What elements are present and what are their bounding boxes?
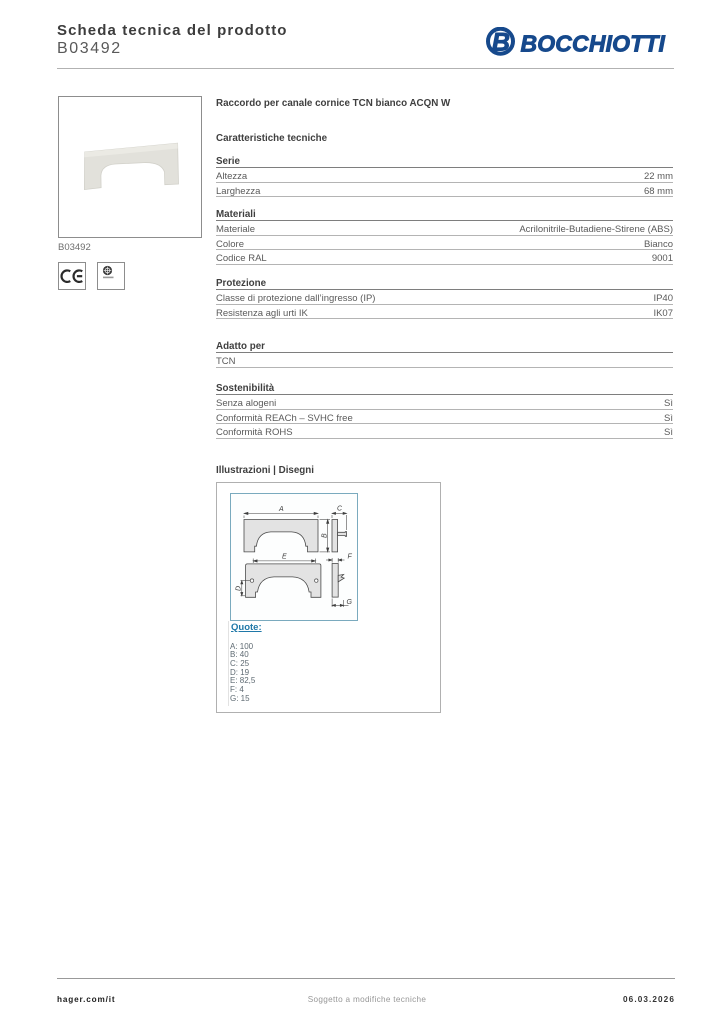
svg-text:B: B — [322, 533, 329, 538]
svg-text:G: G — [347, 599, 353, 606]
svg-text:A: A — [278, 506, 284, 513]
svg-text:BOCCHIOTTI: BOCCHIOTTI — [521, 31, 666, 57]
svg-text:F: F — [348, 554, 353, 561]
svg-text:C: C — [337, 506, 343, 513]
svg-text:E: E — [282, 554, 287, 561]
svg-text:D: D — [236, 586, 243, 591]
svg-text:B: B — [492, 29, 510, 57]
